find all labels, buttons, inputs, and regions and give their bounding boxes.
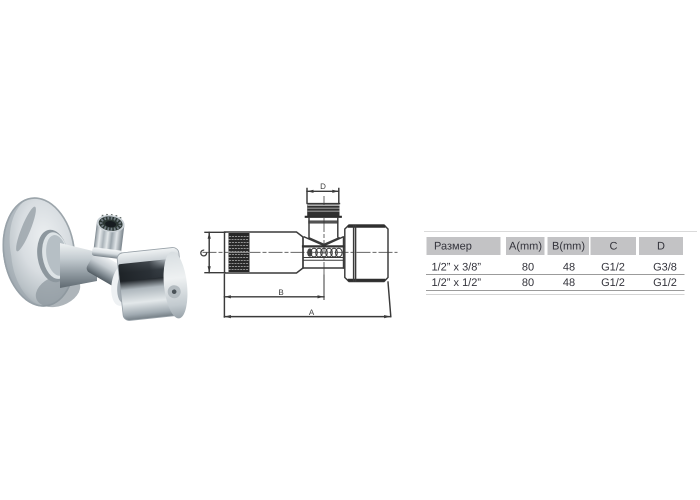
svg-text:A: A bbox=[309, 308, 315, 317]
svg-text:G1/2: G1/2 bbox=[653, 277, 677, 289]
svg-text:B: B bbox=[278, 288, 283, 297]
svg-text:80: 80 bbox=[522, 277, 534, 289]
svg-text:A(mm): A(mm) bbox=[509, 241, 542, 253]
svg-text:Размер: Размер bbox=[434, 241, 472, 253]
svg-text:B(mm): B(mm) bbox=[552, 241, 585, 253]
svg-text:80: 80 bbox=[522, 262, 534, 274]
svg-text:G3/8: G3/8 bbox=[653, 262, 677, 274]
svg-text:1/2” x 3/8”: 1/2” x 3/8” bbox=[432, 262, 482, 274]
svg-text:1/2” x 1/2”: 1/2” x 1/2” bbox=[432, 277, 482, 289]
svg-text:D: D bbox=[657, 241, 665, 253]
svg-text:48: 48 bbox=[563, 262, 575, 274]
svg-text:G1/2: G1/2 bbox=[601, 262, 625, 274]
svg-text:C: C bbox=[610, 241, 618, 253]
svg-text:D: D bbox=[320, 182, 326, 191]
svg-text:G1/2: G1/2 bbox=[601, 277, 625, 289]
svg-text:48: 48 bbox=[563, 277, 575, 289]
